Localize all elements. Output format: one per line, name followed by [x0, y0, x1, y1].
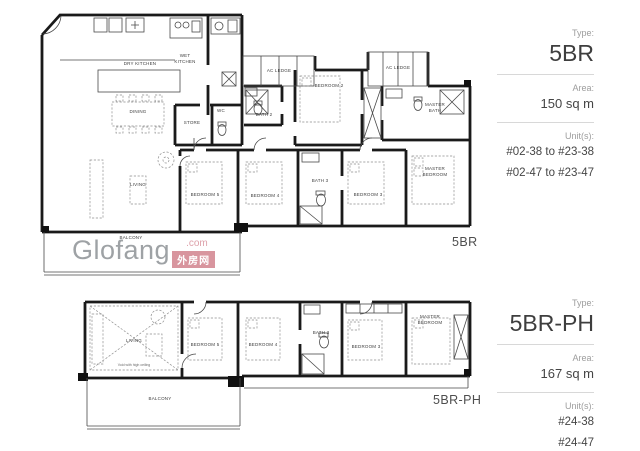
unit-range: #02-38 to #23-38	[497, 144, 594, 162]
type-value: 5BR	[497, 41, 594, 65]
divider	[497, 392, 594, 393]
room-label-master-bedroom-ph: MASTER BEDROOM	[414, 314, 446, 325]
room-label-bedroom5-ph: BEDROOM 5	[188, 342, 222, 348]
watermark: Glofang .com 外房网	[72, 237, 215, 268]
units-label: Unit(s):	[497, 131, 594, 141]
divider	[497, 344, 594, 345]
type-label: Type:	[497, 298, 594, 308]
room-label-dry-kitchen: DRY KITCHEN	[115, 61, 165, 67]
watermark-brand-text: Glofang	[72, 237, 170, 264]
watermark-dotcom-text: .com	[186, 238, 208, 249]
floorplan-page: DRY KITCHEN WET KITCHEN DINING STORE WC …	[0, 0, 640, 451]
room-label-bedroom5: BEDROOM 5	[188, 192, 222, 198]
room-label-bath3-ph: BATH 3	[306, 330, 336, 336]
area-value: 150 sq m	[497, 96, 594, 111]
floorplan-5br-ph: LIVING Void with high ceiling BEDROOM 5 …	[30, 290, 490, 445]
room-label-bedroom2: BEDROOM 2	[311, 83, 347, 89]
room-label-bedroom4-ph: BEDROOM 4	[246, 342, 280, 348]
room-note-void-ceiling: Void with high ceiling	[92, 363, 176, 367]
room-label-bedroom3: BEDROOM 3	[350, 192, 386, 198]
area-label: Area:	[497, 83, 594, 93]
units-label: Unit(s):	[497, 401, 594, 411]
watermark-badge: 外房网	[172, 251, 215, 268]
unit-range: #24-47	[497, 435, 594, 451]
room-label-balcony-ph: BALCONY	[135, 396, 185, 402]
divider	[497, 122, 594, 123]
room-label-living-ph: LIVING	[114, 338, 154, 344]
room-label-master-bath: MASTER BATH	[422, 102, 448, 113]
room-label-bath3: BATH 3	[305, 178, 335, 184]
room-label-store: STORE	[178, 120, 206, 126]
room-label-master-bedroom: MASTER BEDROOM	[420, 166, 450, 177]
room-label-wc: WC	[214, 108, 228, 114]
room-label-bedroom4: BEDROOM 4	[248, 193, 282, 199]
room-label-dining: DINING	[122, 109, 154, 115]
info-panel-5br-ph: Type: 5BR-PH Area: 167 sq m Unit(s): #24…	[497, 298, 594, 451]
room-label-ac-ledge-b: AC LEDGE	[372, 65, 424, 71]
type-value: 5BR-PH	[497, 311, 594, 335]
area-label: Area:	[497, 353, 594, 363]
unit-range: #24-38	[497, 414, 594, 432]
info-panel-5br: Type: 5BR Area: 150 sq m Unit(s): #02-38…	[497, 28, 594, 183]
divider	[497, 74, 594, 75]
walls-5br	[42, 15, 470, 232]
plan-caption-5br-ph: 5BR-PH	[433, 393, 481, 407]
area-value: 167 sq m	[497, 366, 594, 381]
room-label-living: LIVING	[118, 182, 158, 188]
unit-range: #02-47 to #23-47	[497, 165, 594, 183]
room-label-bath2: BATH 2	[250, 112, 278, 118]
room-label-wet-kitchen: WET KITCHEN	[172, 53, 198, 64]
type-label: Type:	[497, 28, 594, 38]
plan-caption-5br: 5BR	[452, 235, 478, 249]
room-label-bedroom3-ph: BEDROOM 3	[348, 344, 384, 350]
room-label-ac-ledge-a: AC LEDGE	[249, 68, 309, 74]
